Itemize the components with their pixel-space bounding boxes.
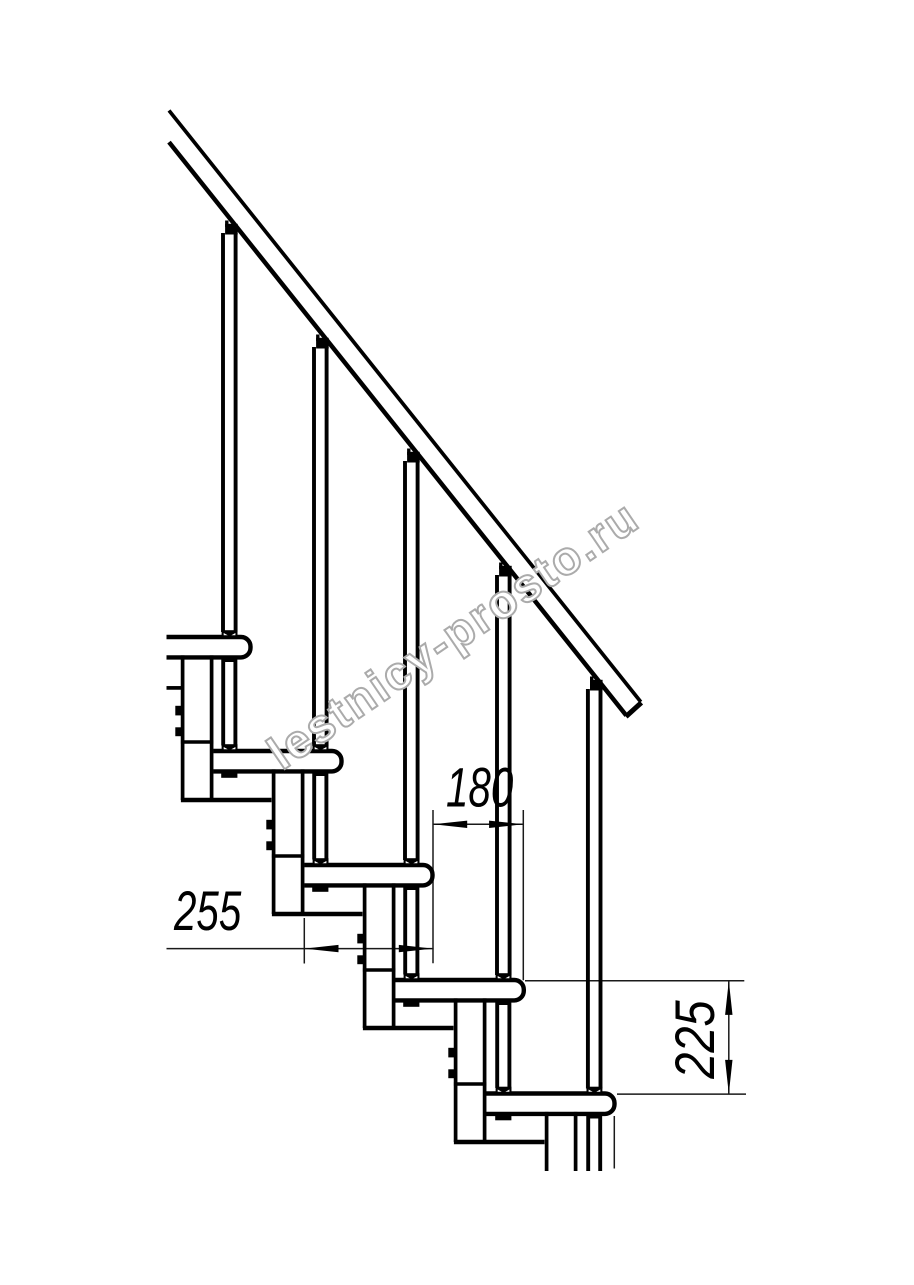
svg-text:255: 255: [173, 880, 242, 942]
svg-text:225: 225: [663, 1000, 726, 1080]
svg-text:180: 180: [446, 757, 513, 819]
